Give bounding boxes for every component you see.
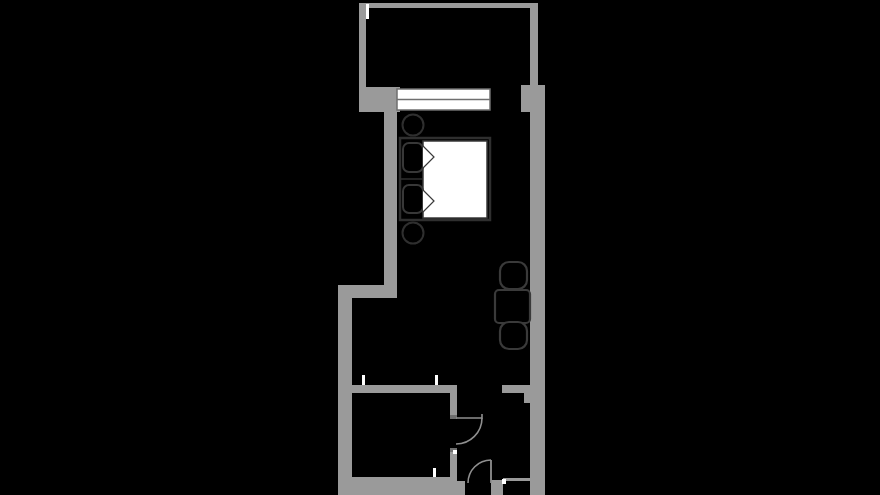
dining-table — [495, 290, 530, 323]
stool-top — [403, 115, 424, 136]
wall-tick-closet — [502, 479, 506, 484]
wall-tv-niche — [527, 148, 530, 208]
left-wall-upper — [384, 110, 397, 290]
left-wall-jog — [338, 285, 397, 298]
left-wall-lower — [338, 298, 352, 495]
bathroom-door-leaf — [456, 414, 482, 418]
balcony-right-wall — [530, 3, 538, 85]
wall-tick-entry-jamb — [453, 450, 457, 454]
wall-tick-bathroom-bottom — [433, 468, 436, 477]
entry-stub-return — [524, 393, 530, 403]
floor-plan — [0, 0, 880, 495]
entry-door-swing — [468, 460, 491, 483]
chair-bottom — [500, 322, 527, 349]
door-hinge-plate-upper — [450, 415, 457, 419]
bathroom-door-swing — [456, 418, 482, 444]
top-wall — [359, 3, 538, 8]
bed-duvet — [423, 141, 487, 218]
floor-plan-canvas — [0, 0, 880, 495]
wall-tick-bathroom-top-right — [435, 375, 438, 385]
closet-front-wall — [503, 478, 532, 481]
right-wall — [530, 85, 545, 495]
wall-tick-balcony — [366, 4, 369, 19]
bathroom-door-jamb-upper — [450, 385, 457, 415]
bed-pillow-top — [403, 143, 423, 172]
window-sill-wall — [359, 87, 400, 112]
entry-right-jamb — [491, 480, 503, 495]
stool-bottom — [403, 223, 424, 244]
bed-pillow-bottom — [403, 185, 423, 213]
entry-wall-stub — [502, 385, 530, 393]
wall-tick-bathroom-top-left — [362, 375, 365, 385]
entry-left-jamb-block — [455, 481, 465, 495]
bathroom-top-wall — [352, 385, 457, 393]
bathroom-bottom-wall — [338, 477, 457, 495]
balcony-left-wall — [359, 3, 366, 88]
chair-top — [500, 262, 527, 289]
